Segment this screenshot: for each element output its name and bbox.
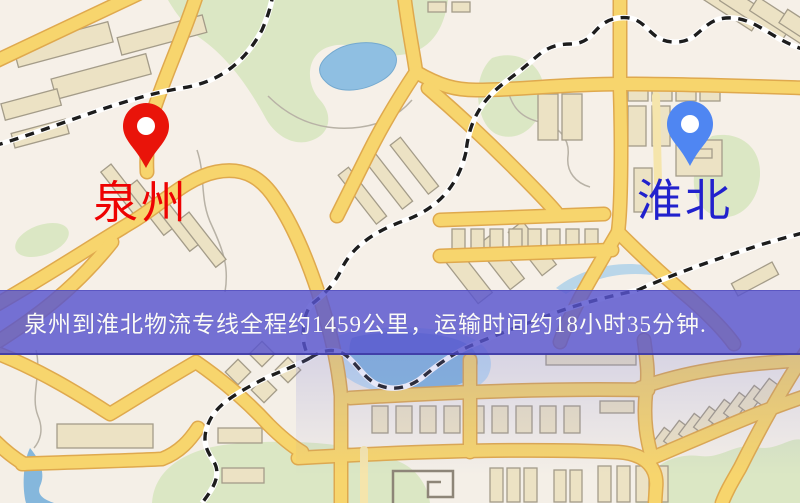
destination-pin-icon[interactable] — [665, 100, 715, 167]
banner-shadow-wash — [296, 355, 800, 475]
origin-pin-icon[interactable] — [121, 102, 171, 169]
destination-pin-hole — [681, 115, 699, 133]
origin-pin-shape[interactable] — [123, 103, 169, 168]
origin-city-label: 泉州 — [93, 181, 189, 226]
destination-city-label: 淮北 — [637, 179, 733, 224]
route-info-text: 泉州到淮北物流专线全程约1459公里，运输时间约18小时35分钟. — [24, 305, 707, 339]
origin-pin-hole — [137, 117, 155, 135]
map-canvas[interactable] — [0, 0, 800, 503]
route-map-screenshot: 泉州到淮北物流专线全程约1459公里，运输时间约18小时35分钟. 泉州 淮北 — [0, 0, 800, 503]
destination-pin-shape[interactable] — [667, 101, 713, 166]
route-info-banner: 泉州到淮北物流专线全程约1459公里，运输时间约18小时35分钟. — [0, 290, 800, 355]
